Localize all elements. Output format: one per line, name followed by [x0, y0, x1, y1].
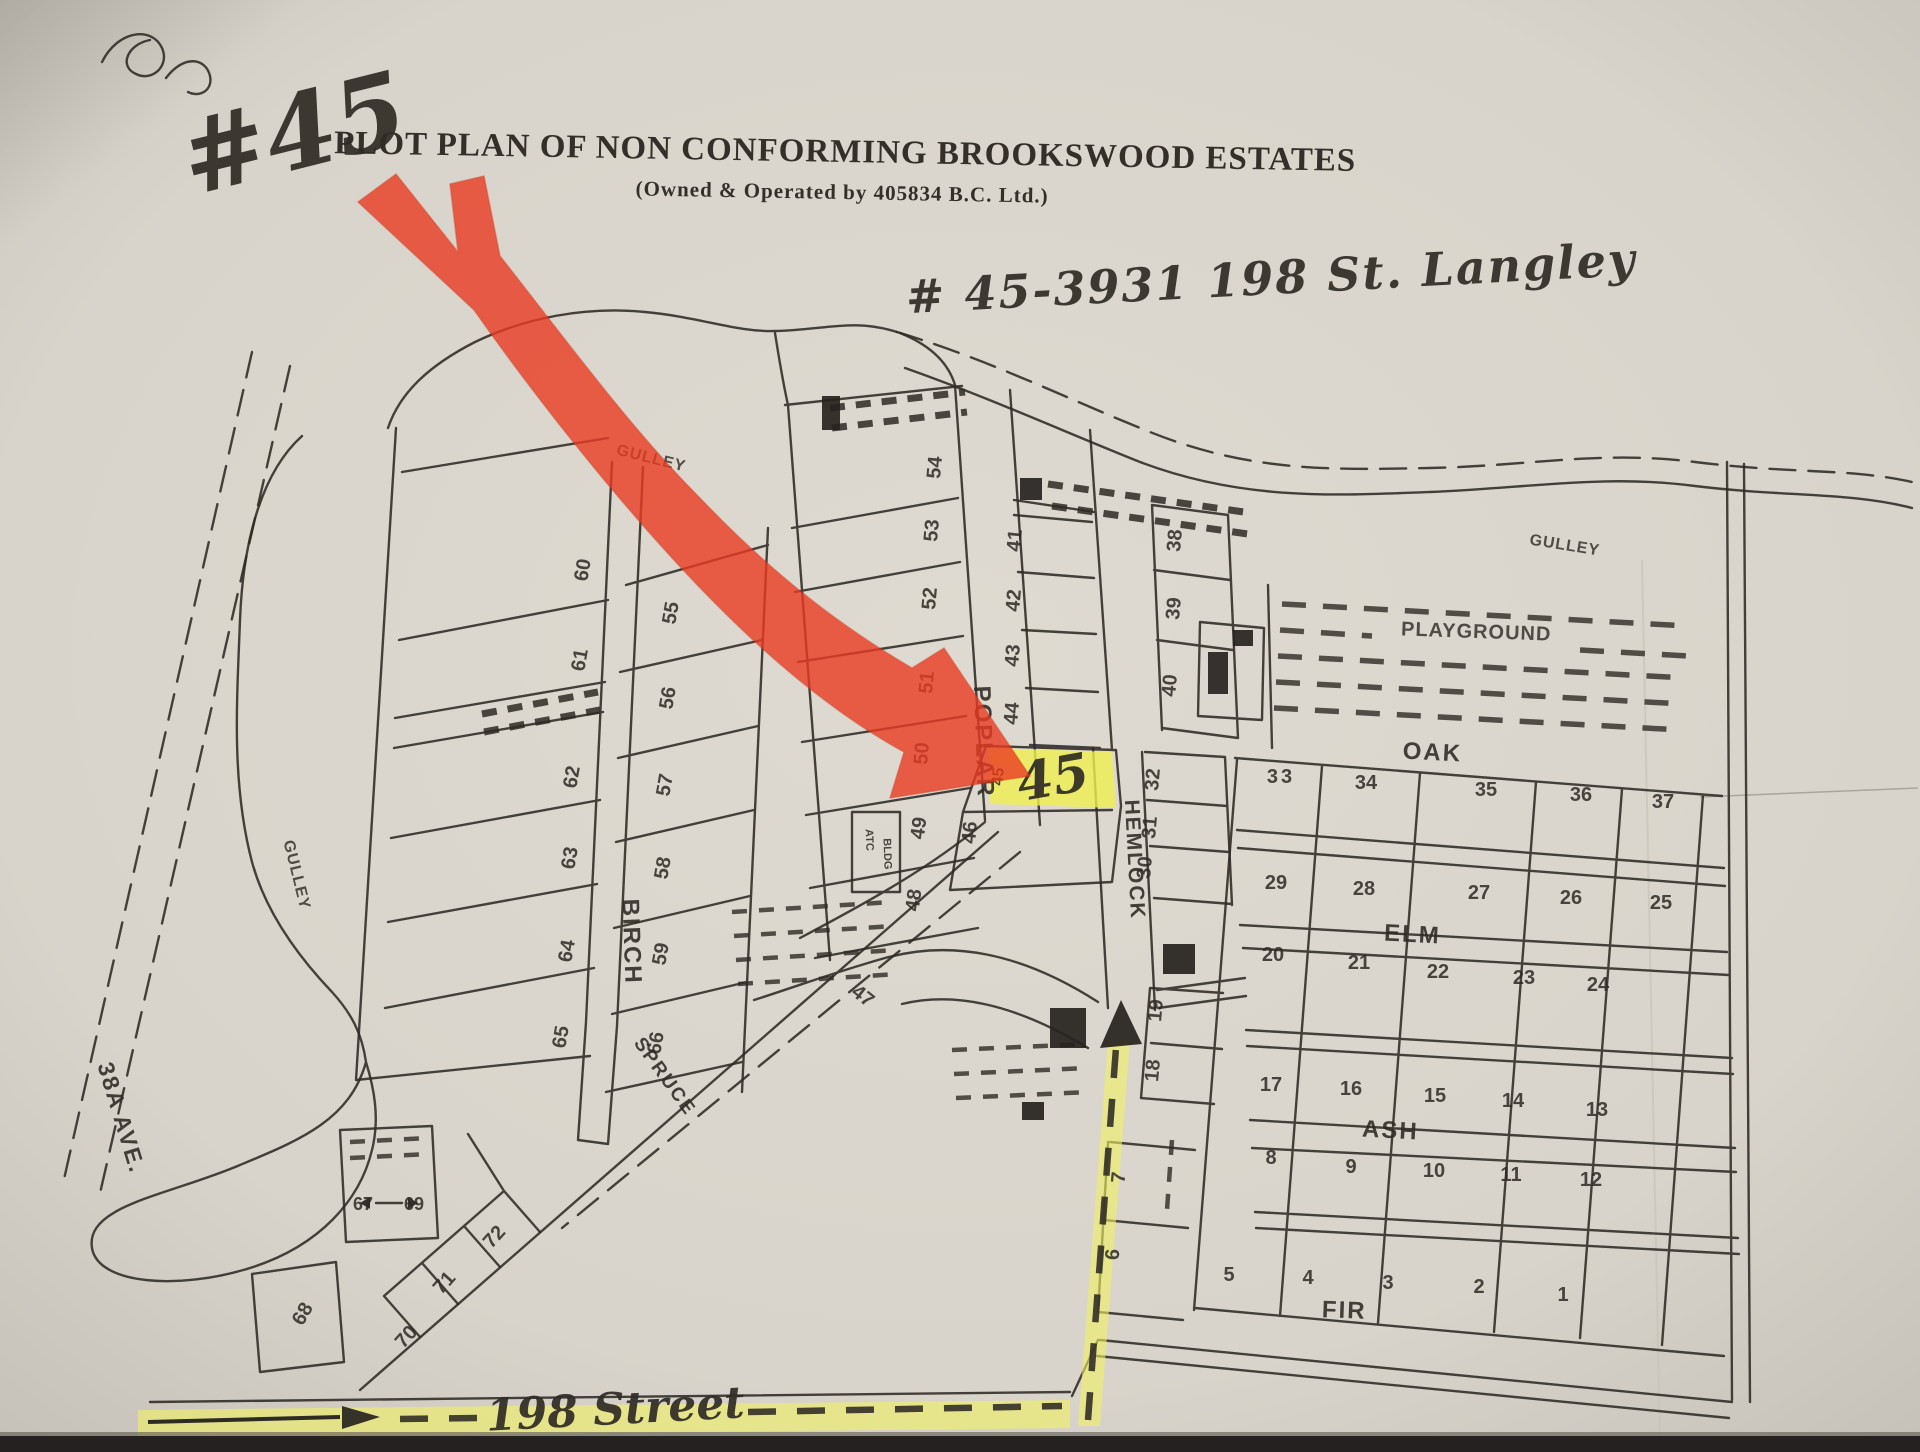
photo-edge-strip	[0, 1436, 1920, 1452]
lot-number: 39	[1162, 596, 1186, 620]
lot-number: 66	[643, 1030, 669, 1056]
lot-number: 58	[650, 855, 676, 881]
lot-number: 21	[1348, 952, 1370, 974]
lot-number: 53	[920, 518, 944, 542]
lot-number: 41	[1003, 528, 1027, 552]
street-label: ELM	[1383, 920, 1441, 950]
street-label: FIR	[1321, 1296, 1367, 1325]
lot-number: 19	[1144, 998, 1168, 1022]
lot-number: 10	[1423, 1160, 1445, 1182]
lot-number: 7	[1108, 1171, 1131, 1184]
lot-number: 17	[1260, 1074, 1282, 1096]
lot-number: 29	[1265, 872, 1287, 894]
lot-number: 6	[1102, 1248, 1125, 1261]
lot-number: 60	[570, 557, 596, 583]
lot-number: 37	[1652, 791, 1674, 813]
lot-number: 49	[907, 816, 932, 841]
lot-number: 61	[567, 647, 593, 673]
lot-number: 34	[1355, 772, 1378, 794]
street-label: BIRCH	[617, 898, 647, 985]
lot-number: 52	[918, 586, 942, 610]
lot-number: 22	[1427, 961, 1449, 983]
lot-number: 33	[1267, 766, 1295, 788]
lot-number: 35	[1475, 779, 1497, 801]
lot-number: 13	[1586, 1099, 1608, 1121]
lot-number: 56	[655, 685, 681, 711]
lot-number: 30	[1133, 855, 1157, 879]
lot-number: 24	[1587, 974, 1610, 996]
lot-number: 69	[404, 1194, 424, 1214]
lot-number: 36	[1570, 784, 1592, 806]
lot-number: 4	[1302, 1267, 1314, 1289]
lot-number: 12	[1580, 1169, 1602, 1191]
lot-number: 23	[1513, 967, 1535, 989]
lot-number: 20	[1262, 944, 1284, 966]
lot-number: 26	[1560, 887, 1582, 909]
building-label: BLDG	[880, 838, 893, 870]
lot-number: 63	[557, 845, 583, 871]
lot-number: 16	[1340, 1078, 1362, 1100]
plot-plan-map: POPLARHEMLOCKBIRCHOAKELMASHFIRSPRUCE38A …	[0, 0, 1920, 1452]
lot-number: 65	[548, 1024, 574, 1050]
lot-number: 5	[1223, 1264, 1234, 1286]
lot-number: 62	[559, 764, 585, 790]
lot-number: 25	[1650, 892, 1672, 914]
lot-number: 48	[902, 888, 927, 913]
street-label: OAK	[1402, 737, 1463, 767]
lot-number: 15	[1424, 1085, 1446, 1107]
building-label: ATC	[863, 829, 876, 851]
lot-number: 32	[1141, 767, 1165, 791]
lot-number: 14	[1502, 1090, 1525, 1112]
lot-number: 11	[1500, 1164, 1521, 1186]
lot-number: 67	[353, 1194, 373, 1214]
lot-number: 28	[1353, 878, 1375, 900]
lot-number: 8	[1265, 1147, 1276, 1169]
lot-number: 9	[1345, 1156, 1356, 1178]
lot-number: 59	[648, 941, 674, 967]
lot-number: 2	[1473, 1276, 1484, 1298]
lot-number: 43	[1001, 643, 1025, 667]
lot-number: 3	[1382, 1272, 1393, 1294]
lot-number: 1	[1557, 1284, 1568, 1306]
lot-number: 57	[652, 772, 678, 798]
lot-number: 18	[1141, 1058, 1165, 1082]
paper-bottom-edge	[0, 1432, 1920, 1436]
lot-number: 42	[1002, 588, 1026, 612]
lot-45-handwritten: 45	[1012, 741, 1094, 814]
lot-number: 40	[1158, 673, 1182, 697]
lot-number: 31	[1138, 815, 1162, 839]
street-label: ASH	[1361, 1116, 1419, 1146]
lot-number: 44	[1000, 701, 1024, 726]
lot-number: 27	[1468, 882, 1490, 904]
lot-number: 38	[1163, 528, 1187, 552]
lot-number: 54	[923, 455, 947, 480]
paper-corner-shadow	[0, 0, 520, 420]
scanned-plot-plan-page: POPLARHEMLOCKBIRCHOAKELMASHFIRSPRUCE38A …	[0, 0, 1920, 1452]
lot-number: 55	[658, 600, 684, 626]
lot-number: 46	[958, 820, 982, 844]
